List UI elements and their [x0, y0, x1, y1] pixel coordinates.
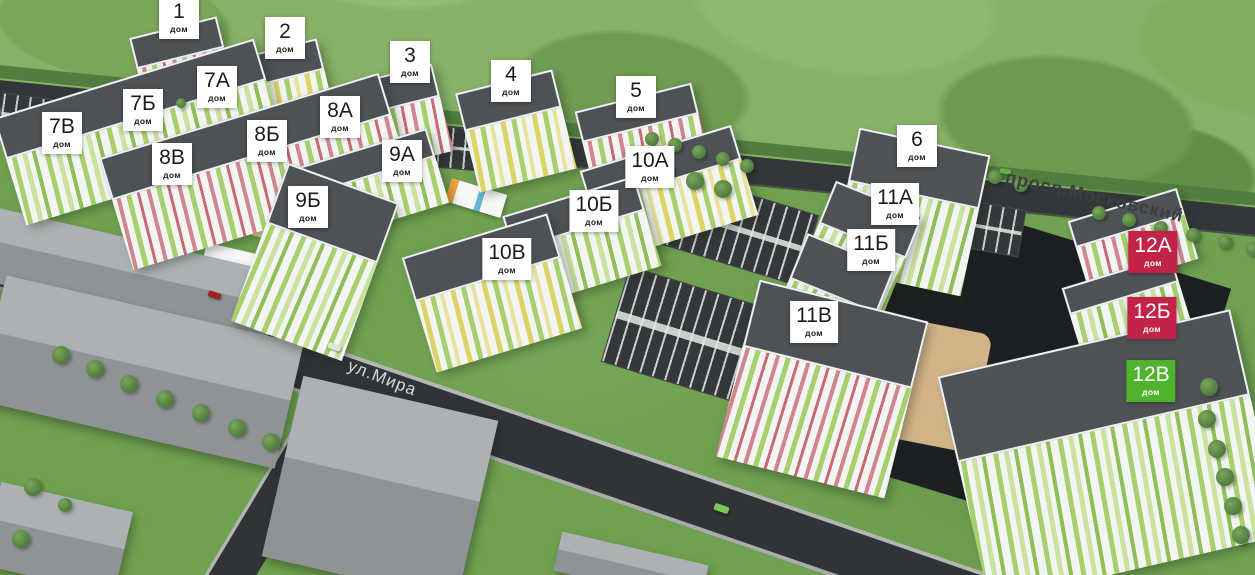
building-marker-3[interactable]: 3 дом	[390, 41, 430, 83]
building-sub-label: дом	[48, 139, 76, 149]
building-marker-9a[interactable]: 9А дом	[382, 140, 422, 182]
tree-icon	[262, 433, 280, 451]
tree-icon	[1186, 228, 1200, 242]
building-number: 12Б	[1133, 301, 1170, 323]
building-number: 10В	[488, 242, 525, 264]
building-marker-4[interactable]: 4 дом	[491, 60, 531, 102]
building-marker-10a[interactable]: 10А дом	[625, 146, 674, 188]
building-number: 11Б	[853, 233, 889, 255]
tree-icon	[58, 498, 72, 512]
building-number: 10А	[631, 150, 668, 172]
building-number: 7А	[203, 70, 231, 92]
building-number: 8В	[158, 147, 186, 169]
tree-icon	[156, 390, 174, 408]
building-sub-label: дом	[853, 256, 889, 266]
building-marker-8a[interactable]: 8А дом	[320, 96, 360, 138]
building-number: 9Б	[294, 190, 322, 212]
building-sub-label: дом	[1133, 324, 1170, 334]
tree-icon	[176, 98, 186, 108]
building-sub-label: дом	[158, 170, 186, 180]
building-number: 8А	[326, 100, 354, 122]
building-marker-2[interactable]: 2 дом	[265, 17, 305, 59]
building-marker-11a[interactable]: 11А дом	[871, 183, 919, 225]
tree-icon	[1224, 497, 1242, 515]
building-number: 11А	[877, 187, 913, 209]
building-number: 1	[165, 1, 193, 23]
building-sub-label: дом	[396, 68, 424, 78]
tree-icon	[1200, 378, 1218, 396]
building-number: 9А	[388, 144, 416, 166]
building-marker-7b[interactable]: 7Б дом	[123, 89, 163, 131]
building-marker-12b[interactable]: 12Б дом	[1127, 297, 1176, 339]
building-sub-label: дом	[877, 210, 913, 220]
building-sub-label: дом	[497, 87, 525, 97]
building-sub-label: дом	[271, 44, 299, 54]
building-sub-label: дом	[294, 213, 322, 223]
tree-icon	[228, 419, 246, 437]
building-sub-label: дом	[326, 123, 354, 133]
tree-icon	[714, 180, 732, 198]
building-number: 3	[396, 45, 424, 67]
building-number: 10Б	[575, 194, 612, 216]
site-plan: ул.Мира просп.Московский 1 дом 2 дом 3 д…	[0, 0, 1255, 575]
building-marker-1[interactable]: 1 дом	[159, 0, 199, 39]
building-sub-label: дом	[253, 147, 281, 157]
building-number: 7Б	[129, 93, 157, 115]
building-number: 12В	[1132, 364, 1169, 386]
tree-icon	[686, 172, 704, 190]
building-number: 11В	[796, 305, 832, 327]
building-marker-9b[interactable]: 9Б дом	[288, 186, 328, 228]
building-sub-label: дом	[796, 328, 832, 338]
building-marker-5[interactable]: 5 дом	[616, 76, 656, 118]
building-marker-12a[interactable]: 12А дом	[1128, 231, 1177, 273]
tree-icon	[1246, 242, 1255, 256]
building-marker-12v[interactable]: 12В дом	[1126, 360, 1175, 402]
tree-icon	[24, 478, 42, 496]
building-sub-label: дом	[165, 24, 193, 34]
tree-icon	[120, 375, 138, 393]
tree-icon	[12, 530, 30, 548]
building-marker-7v[interactable]: 7В дом	[42, 112, 82, 154]
building-number: 12А	[1134, 235, 1171, 257]
building-marker-11v[interactable]: 11В дом	[790, 301, 838, 343]
building-number: 7В	[48, 116, 76, 138]
building-marker-6[interactable]: 6 дом	[897, 125, 937, 167]
building-marker-10v[interactable]: 10В дом	[482, 238, 531, 280]
building-sub-label: дом	[488, 265, 525, 275]
building-sub-label: дом	[903, 152, 931, 162]
building-number: 4	[497, 64, 525, 86]
building-sub-label: дом	[203, 93, 231, 103]
building-number: 6	[903, 129, 931, 151]
tree-icon	[52, 346, 70, 364]
building-number: 8Б	[253, 124, 281, 146]
tree-icon	[645, 132, 659, 146]
building-sub-label: дом	[1132, 387, 1169, 397]
tree-icon	[192, 404, 210, 422]
tree-icon	[1208, 440, 1226, 458]
building-sub-label: дом	[622, 103, 650, 113]
building-sub-label: дом	[1134, 258, 1171, 268]
building-sub-label: дом	[575, 217, 612, 227]
building-sub-label: дом	[388, 167, 416, 177]
building-marker-8v[interactable]: 8В дом	[152, 143, 192, 185]
tree-icon	[692, 145, 706, 159]
tree-icon	[1198, 410, 1216, 428]
tree-icon	[716, 152, 730, 166]
building-sub-label: дом	[129, 116, 157, 126]
building-marker-10b[interactable]: 10Б дом	[569, 190, 618, 232]
tree-icon	[740, 159, 754, 173]
tree-icon	[86, 360, 104, 378]
tree-icon	[1218, 235, 1232, 249]
building-marker-7a[interactable]: 7А дом	[197, 66, 237, 108]
building-marker-11b[interactable]: 11Б дом	[847, 229, 895, 271]
building-number: 2	[271, 21, 299, 43]
building-marker-8b[interactable]: 8Б дом	[247, 120, 287, 162]
building-number: 5	[622, 80, 650, 102]
building-sub-label: дом	[631, 173, 668, 183]
tree-icon	[1232, 526, 1250, 544]
tree-icon	[1216, 468, 1234, 486]
